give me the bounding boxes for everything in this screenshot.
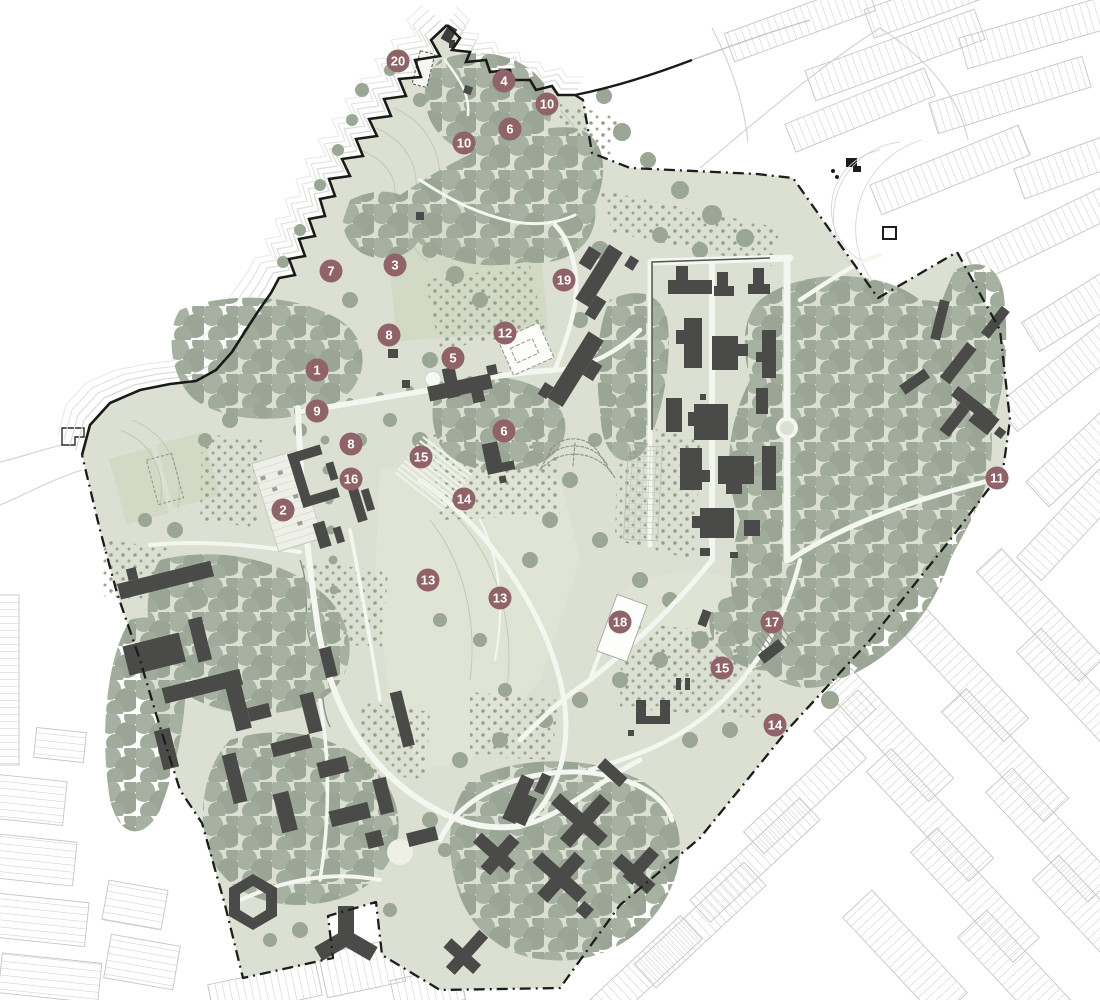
marker-number: 12	[498, 326, 512, 341]
marker-number: 15	[414, 450, 428, 465]
map-marker-2[interactable]: 2	[272, 499, 295, 522]
marker-number: 6	[500, 424, 507, 439]
map-marker-15[interactable]: 15	[410, 446, 433, 469]
marker-number: 6	[506, 122, 513, 137]
map-marker-13[interactable]: 13	[417, 569, 440, 592]
site-plan-canvas: Masterplan site map with numbered key lo…	[0, 0, 1100, 1000]
marker-number: 13	[421, 573, 435, 588]
marker-number: 10	[457, 136, 471, 151]
map-marker-8[interactable]: 8	[378, 324, 401, 347]
marker-number: 2	[279, 503, 286, 518]
map-marker-18[interactable]: 18	[609, 611, 632, 634]
marker-number: 8	[347, 437, 354, 452]
masterplan-map: Masterplan site map with numbered key lo…	[0, 0, 1100, 1000]
marker-number: 3	[391, 258, 398, 273]
marker-number: 14	[768, 718, 783, 733]
marker-number: 10	[540, 97, 554, 112]
map-marker-5[interactable]: 5	[442, 347, 465, 370]
map-marker-1[interactable]: 1	[306, 359, 329, 382]
map-marker-14[interactable]: 14	[764, 714, 787, 737]
marker-number: 19	[557, 273, 571, 288]
marker-number: 15	[715, 661, 729, 676]
map-marker-6[interactable]: 6	[499, 118, 522, 141]
map-marker-7[interactable]: 7	[320, 260, 343, 283]
map-marker-3[interactable]: 3	[384, 254, 407, 277]
marker-number: 5	[449, 351, 456, 366]
map-marker-6[interactable]: 6	[493, 420, 516, 443]
map-marker-16[interactable]: 16	[340, 468, 363, 491]
map-marker-12[interactable]: 12	[494, 322, 517, 345]
map-marker-20[interactable]: 20	[387, 50, 410, 73]
marker-number: 18	[613, 615, 627, 630]
map-marker-11[interactable]: 11	[986, 467, 1009, 490]
marker-number: 8	[385, 328, 392, 343]
map-marker-17[interactable]: 17	[761, 611, 784, 634]
map-marker-13[interactable]: 13	[489, 587, 512, 610]
map-marker-8[interactable]: 8	[340, 433, 363, 456]
marker-number: 7	[327, 264, 334, 279]
map-marker-14[interactable]: 14	[453, 488, 476, 511]
marker-number: 17	[765, 615, 779, 630]
marker-number: 4	[500, 74, 508, 89]
map-marker-4[interactable]: 4	[493, 70, 516, 93]
marker-number: 16	[344, 472, 358, 487]
marker-number: 20	[391, 54, 405, 69]
map-marker-19[interactable]: 19	[553, 269, 576, 292]
marker-number: 9	[313, 404, 320, 419]
map-marker-9[interactable]: 9	[306, 400, 329, 423]
marker-number: 13	[493, 591, 507, 606]
map-marker-10[interactable]: 10	[453, 132, 476, 155]
marker-number: 11	[990, 471, 1004, 486]
marker-number: 14	[457, 492, 472, 507]
marker-number: 1	[313, 363, 320, 378]
map-marker-15[interactable]: 15	[711, 657, 734, 680]
map-marker-10[interactable]: 10	[536, 93, 559, 116]
